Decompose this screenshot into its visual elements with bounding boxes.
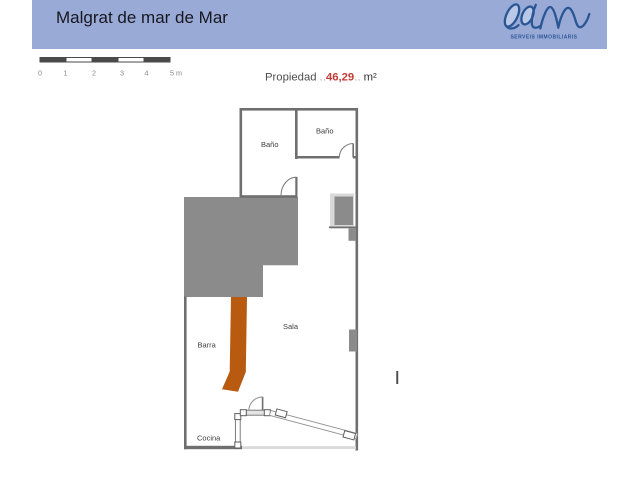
svg-text:Baño: Baño: [316, 127, 334, 136]
svg-text:1: 1: [64, 68, 68, 77]
svg-text:Baño: Baño: [261, 140, 279, 149]
svg-text:0: 0: [38, 68, 42, 77]
svg-text:Barra: Barra: [198, 341, 217, 350]
svg-text:Cocina: Cocina: [197, 434, 221, 443]
svg-text:SERVEIS IMMOBILIARIS: SERVEIS IMMOBILIARIS: [511, 34, 578, 40]
svg-text:Malgrat de mar de Mar: Malgrat de mar de Mar: [56, 8, 228, 27]
svg-text:4: 4: [145, 68, 149, 77]
svg-text:Sala: Sala: [283, 322, 299, 331]
svg-text:5 m: 5 m: [170, 68, 182, 77]
svg-text:Propiedad ..46,29.. m²: Propiedad ..46,29.. m²: [265, 72, 377, 84]
svg-text:3: 3: [120, 68, 124, 77]
svg-text:2: 2: [92, 68, 96, 77]
